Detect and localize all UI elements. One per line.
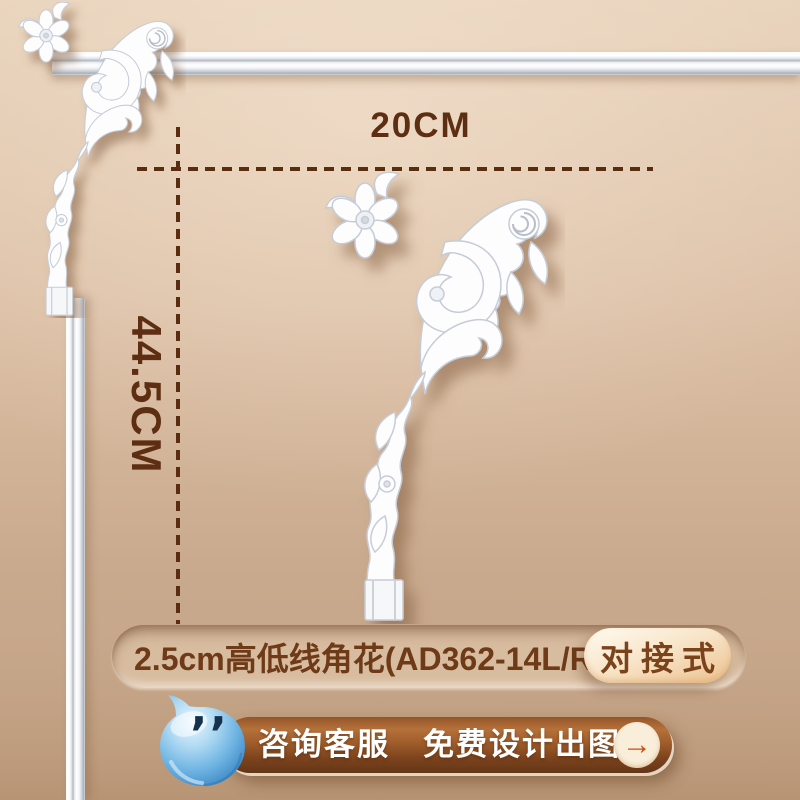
connection-type-badge: 对接式 — [584, 628, 731, 683]
contact-service-banner[interactable]: 咨询客服 免费设计出图 → — [222, 717, 672, 773]
customer-service-mascot-icon[interactable]: ’’ — [156, 692, 250, 790]
height-dimension-label: 44.5CM — [122, 315, 170, 474]
corner-molding-installed — [18, 2, 186, 318]
height-dimension-line — [176, 127, 180, 624]
banner-label: 咨询客服 免费设计出图 — [258, 717, 621, 773]
arrow-right-icon[interactable]: → — [614, 722, 660, 768]
wall-trim-vertical — [66, 298, 85, 800]
product-detail-image: 20CM 44.5CM 2.5cm高低线角花(AD362-14L/R) 对接式 … — [0, 0, 800, 800]
width-dimension-label: 20CM — [336, 106, 506, 146]
mascot-eyes: ’’ — [190, 707, 229, 761]
product-name-label: 2.5cm高低线角花(AD362-14L/R) — [112, 634, 603, 680]
width-dimension-line — [137, 167, 653, 171]
corner-flower-product — [325, 172, 565, 624]
